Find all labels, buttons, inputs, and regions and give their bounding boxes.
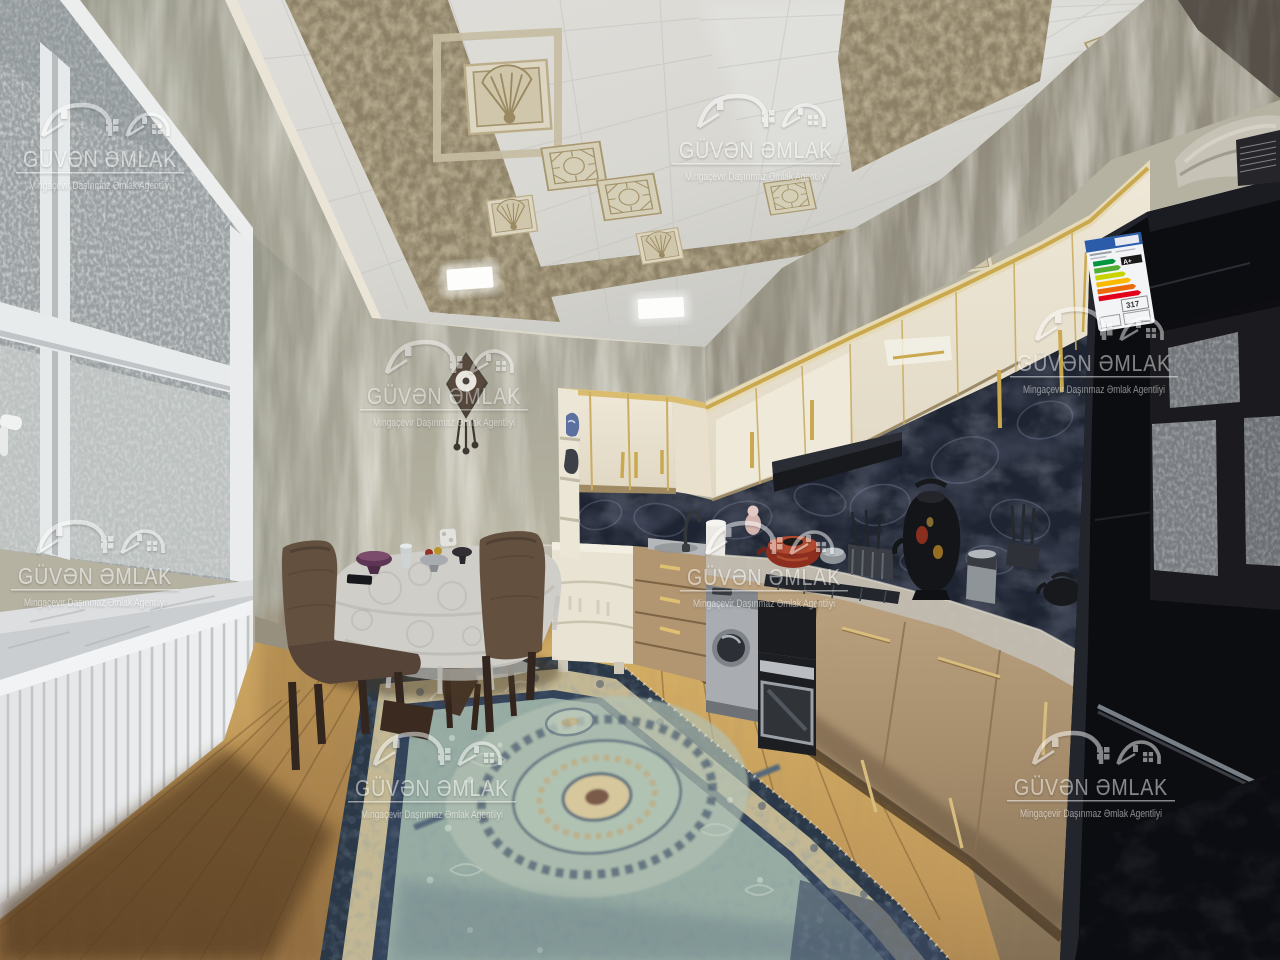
svg-text:A+: A+ [1123,258,1133,266]
